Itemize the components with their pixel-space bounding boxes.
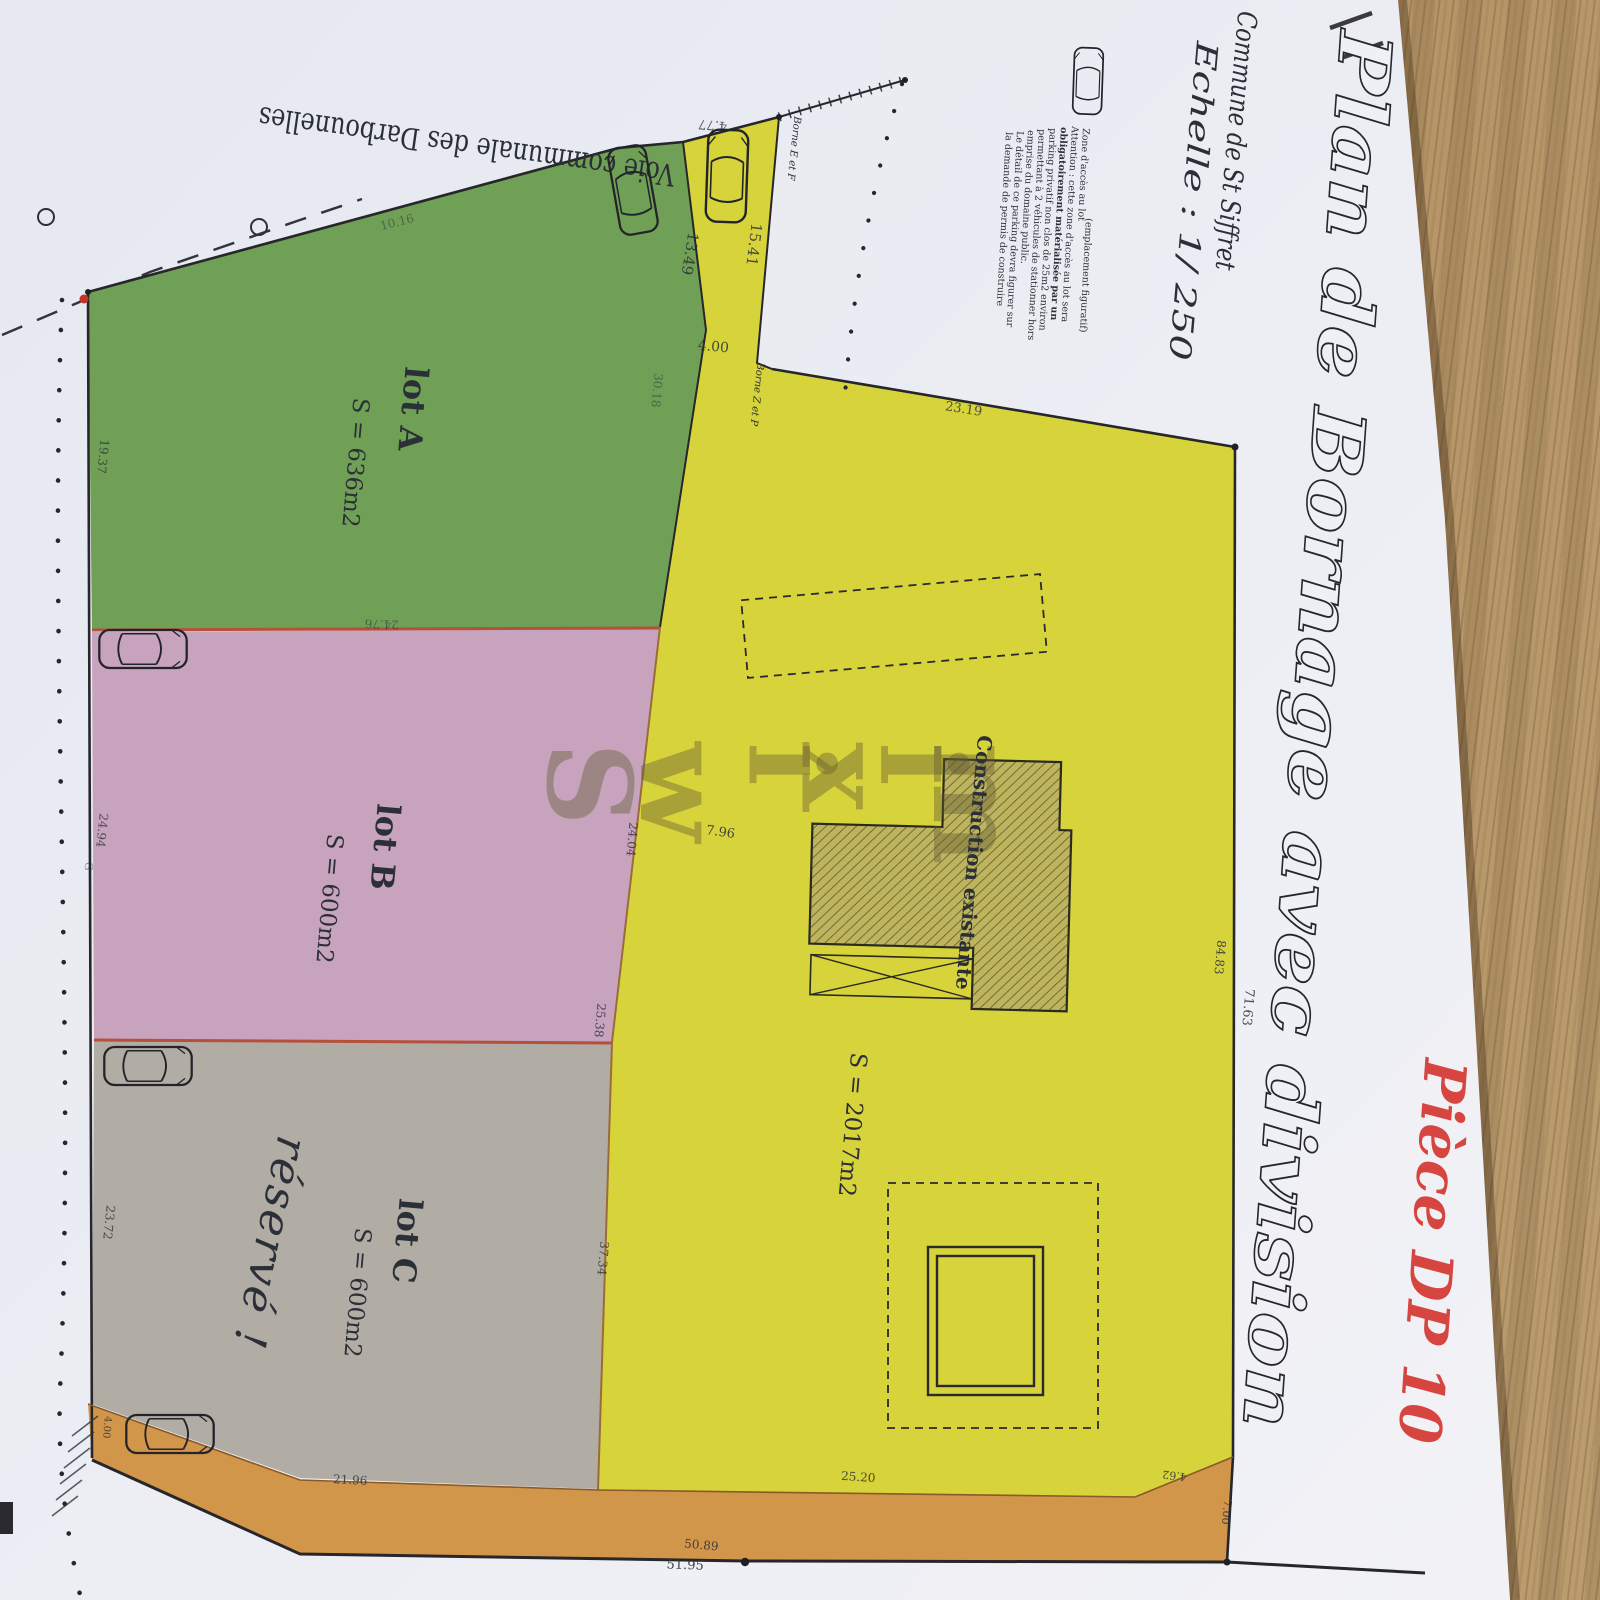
dimension-label: 24.76 — [364, 616, 399, 631]
photo-background-wood-table: Swixim Plan de Bornage avec division Piè… — [0, 0, 1600, 1600]
lot-label: lot A — [390, 365, 435, 453]
edge-dark-mark — [0, 1502, 13, 1534]
dimension-label: 50.89 — [684, 1537, 719, 1554]
dimension-label: 51.95 — [666, 1557, 704, 1573]
dimension-label: 25.38 — [592, 1003, 609, 1038]
dimension-label: 7.00 — [1219, 1500, 1234, 1526]
lot-label: lot B — [362, 802, 407, 891]
dimension-label: G — [82, 861, 96, 871]
dimension-label: 25.20 — [841, 1469, 876, 1485]
dimension-label: 4.00 — [697, 338, 729, 357]
red-borne-marker — [80, 295, 89, 304]
dimension-label: 21.96 — [333, 1472, 368, 1488]
lot-label: lot C — [384, 1197, 429, 1285]
dimension-label: 84.83 — [1212, 940, 1229, 975]
survey-plan-photo: Swixim Plan de Bornage avec division Piè… — [0, 0, 1600, 1600]
dimension-label: 30.18 — [649, 373, 666, 408]
dimension-label: 4.00 — [100, 1416, 113, 1439]
